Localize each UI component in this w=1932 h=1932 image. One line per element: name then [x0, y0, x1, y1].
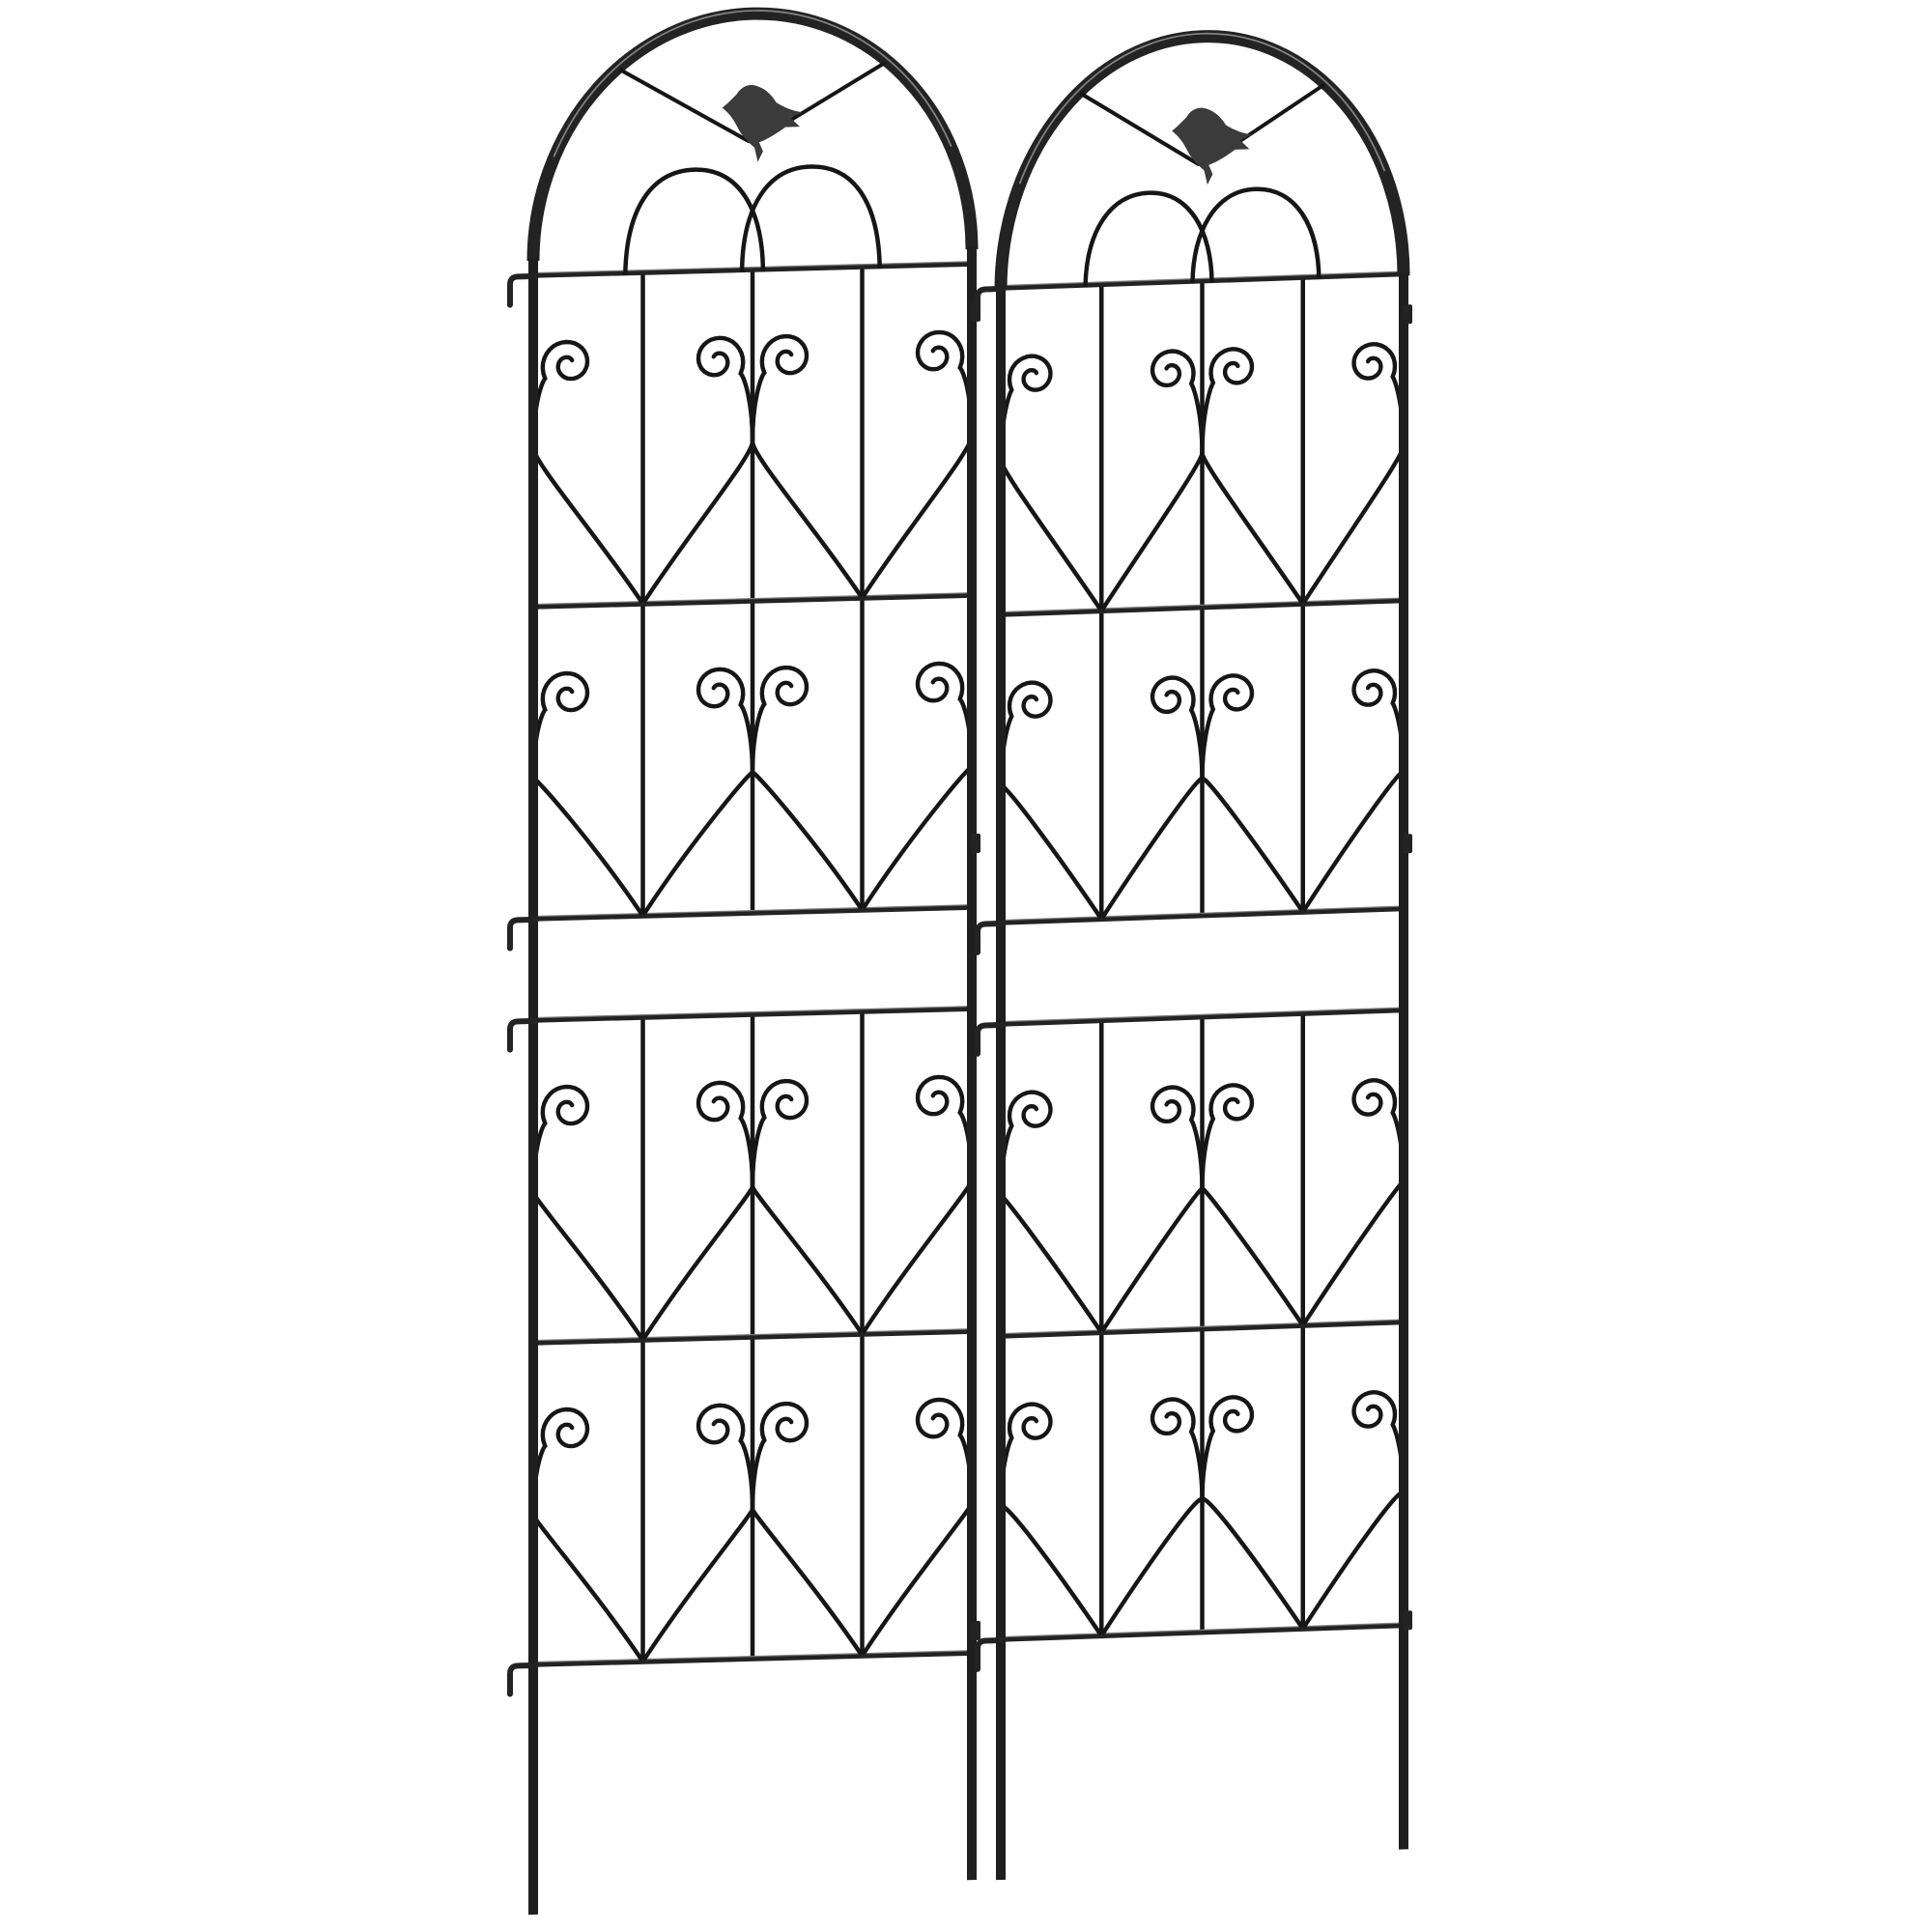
- scroll-heart-motif: [533, 340, 641, 604]
- scroll-heart-motif: [1203, 1083, 1301, 1326]
- scroll-heart-motif: [1001, 1402, 1099, 1636]
- scroll-heart-motif: [753, 1079, 861, 1334]
- scroll-heart-motif: [753, 1402, 861, 1656]
- scroll-heart-motif: [865, 1076, 973, 1331]
- scroll-heart-motif: [1305, 343, 1404, 601]
- connector-tab: [971, 834, 980, 853]
- scroll-heart-motif: [1001, 680, 1099, 920]
- scroll-heart-motif: [865, 663, 973, 907]
- scroll-heart-motif: [1103, 676, 1202, 916]
- scroll-heart-motif: [533, 1085, 641, 1340]
- connector-tab: [971, 1621, 980, 1640]
- scroll-heart-motif: [1103, 350, 1202, 608]
- scroll-heart-motif: [533, 1407, 641, 1662]
- connector-tab: [1403, 1610, 1412, 1630]
- trellis-panel-left: [510, 5, 980, 1916]
- scroll-heart-motif: [753, 666, 861, 910]
- trellis-panel-right: [978, 26, 1412, 1881]
- scroll-heart-motif: [533, 671, 641, 916]
- scroll-heart-motif: [645, 1405, 753, 1659]
- scroll-heart-motif: [865, 331, 973, 595]
- trellis-product-photo: [0, 0, 1932, 1932]
- scroll-heart-motif: [1103, 1398, 1202, 1633]
- scroll-heart-motif: [753, 334, 861, 598]
- scroll-heart-motif: [1203, 347, 1301, 605]
- scroll-heart-motif: [1001, 354, 1099, 611]
- scroll-heart-motif: [1001, 1090, 1099, 1333]
- connector-tab: [1403, 834, 1412, 853]
- scroll-heart-motif: [645, 1082, 753, 1337]
- scroll-heart-motif: [1203, 673, 1301, 913]
- scroll-heart-motif: [1305, 1079, 1404, 1322]
- trellis-illustration: [0, 0, 1932, 1932]
- connector-tab: [1403, 304, 1412, 324]
- bird-silhouette: [1172, 106, 1252, 186]
- bird-silhouette: [723, 84, 803, 163]
- scroll-heart-motif: [1305, 1391, 1404, 1626]
- scroll-heart-motif: [645, 337, 753, 601]
- scroll-heart-motif: [1103, 1086, 1202, 1329]
- scroll-heart-motif: [865, 1399, 973, 1653]
- scroll-heart-motif: [1203, 1395, 1301, 1630]
- scroll-heart-motif: [645, 668, 753, 913]
- scroll-heart-motif: [1305, 669, 1404, 909]
